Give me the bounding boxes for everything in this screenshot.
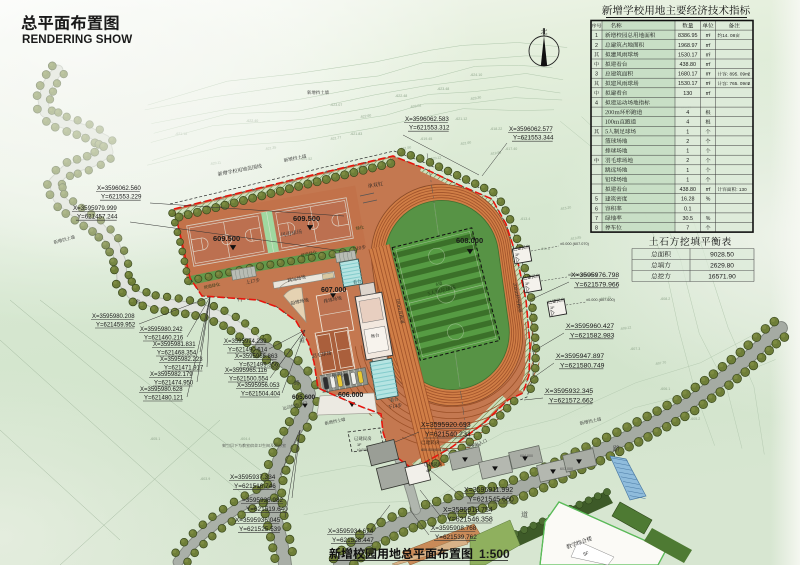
svg-text:X=3595966.863: X=3595966.863: [235, 354, 278, 360]
svg-text:2: 2: [709, 52, 711, 56]
svg-text:1530.17: 1530.17: [678, 81, 698, 87]
svg-text:600.000(606.000): 600.000(606.000): [421, 448, 449, 452]
svg-text:16.28: 16.28: [681, 197, 695, 203]
svg-text:2: 2: [709, 32, 711, 36]
svg-text:-617.40: -617.40: [505, 147, 517, 151]
svg-text:Y=621539.762: Y=621539.762: [435, 534, 477, 541]
svg-text:X=3596062.560: X=3596062.560: [97, 185, 141, 192]
svg-text::: :: [727, 81, 728, 86]
svg-text:X=3595947.897: X=3595947.897: [556, 353, 604, 360]
svg-text:-619.45: -619.45: [420, 137, 432, 141]
svg-text:±0.000 (607.070): ±0.000 (607.070): [560, 242, 590, 246]
svg-text:2: 2: [686, 139, 689, 145]
svg-text:X=3595974.233: X=3595974.233: [224, 339, 267, 345]
svg-text:8: 8: [595, 226, 598, 232]
svg-text:%: %: [706, 216, 711, 222]
svg-text:Y=621474.950: Y=621474.950: [154, 381, 194, 387]
svg-text:Y=621553.312: Y=621553.312: [409, 125, 450, 132]
svg-text:X=3595980.628: X=3595980.628: [140, 387, 183, 393]
svg-text:X=3595979.999: X=3595979.999: [73, 205, 117, 212]
svg-text:Y=621480.121: Y=621480.121: [144, 396, 184, 402]
svg-text:1F: 1F: [515, 253, 520, 257]
svg-text:438.80: 438.80: [680, 187, 697, 193]
svg-text:2: 2: [709, 90, 711, 94]
svg-text:±0.000 (607.600): ±0.000 (607.600): [586, 298, 616, 302]
svg-text:1: 1: [686, 177, 689, 183]
svg-text:2: 2: [595, 43, 598, 49]
svg-text:2: 2: [709, 71, 711, 75]
svg-text:Y=621545.660: Y=621545.660: [468, 497, 514, 504]
svg-text:X=3595934.674: X=3595934.674: [328, 528, 374, 535]
svg-text:8386.95: 8386.95: [678, 33, 698, 39]
svg-text:-603.9: -603.9: [200, 477, 210, 481]
svg-text:-606.1: -606.1: [660, 387, 670, 391]
svg-text:0.1: 0.1: [684, 206, 692, 212]
svg-text:Y=621572.662: Y=621572.662: [549, 397, 594, 404]
svg-text:-608.2: -608.2: [660, 297, 670, 301]
svg-text:4: 4: [686, 120, 689, 126]
svg-text:Y=621471.917: Y=621471.917: [164, 366, 204, 372]
svg-text:9028.50: 9028.50: [710, 252, 734, 259]
svg-text:X=3595976.798: X=3595976.798: [571, 272, 619, 279]
svg-text:Y=621580.749: Y=621580.749: [560, 362, 605, 369]
svg-text:Y=621457.244: Y=621457.244: [77, 214, 118, 221]
svg-text:7: 7: [686, 226, 689, 232]
svg-text:2: 2: [748, 72, 751, 77]
svg-text:-605.1: -605.1: [150, 437, 160, 441]
svg-text:605.600: 605.600: [292, 394, 316, 401]
svg-text:1: 1: [595, 33, 598, 39]
svg-text:1: 1: [686, 149, 689, 155]
svg-text:X=3595932.345: X=3595932.345: [545, 388, 593, 395]
svg-text:1530.17: 1530.17: [678, 52, 698, 58]
svg-text:X=3596062.583: X=3596062.583: [405, 116, 449, 123]
svg-text:X=3595937.334: X=3595937.334: [230, 474, 276, 481]
svg-text:1: 1: [686, 168, 689, 174]
svg-text:609.500: 609.500: [293, 214, 320, 223]
svg-text:608.000: 608.000: [456, 236, 483, 245]
svg-text:2629.80: 2629.80: [710, 263, 734, 270]
svg-text:-605.2: -605.2: [690, 417, 700, 421]
svg-text:Y=621579.966: Y=621579.966: [575, 281, 620, 288]
svg-text:2: 2: [748, 81, 751, 86]
svg-text:2: 2: [709, 186, 711, 190]
svg-text:-604.4: -604.4: [240, 437, 250, 441]
svg-text:Y=621519.640: Y=621519.640: [246, 506, 288, 513]
svg-text:16571.90: 16571.90: [708, 274, 736, 281]
svg-text:1F: 1F: [525, 282, 530, 286]
svg-text:604.000: 604.000: [520, 454, 533, 458]
svg-text:Y=621553.229: Y=621553.229: [101, 194, 142, 201]
svg-text:Y=621582.983: Y=621582.983: [570, 332, 615, 339]
svg-text:X=3595911.992: X=3595911.992: [464, 487, 513, 494]
svg-text:X=3595981.831: X=3595981.831: [153, 342, 196, 348]
svg-text:Y=621504.404: Y=621504.404: [241, 392, 281, 398]
svg-text:605.000: 605.000: [468, 443, 481, 447]
svg-text:6: 6: [595, 206, 598, 212]
svg-text:Y=621500.554: Y=621500.554: [229, 377, 269, 383]
svg-text:603.000: 603.000: [560, 467, 573, 471]
svg-text:X=3595956.053: X=3595956.053: [237, 383, 280, 389]
svg-text:2: 2: [686, 158, 689, 164]
svg-text:X=3595936.045: X=3595936.045: [235, 517, 281, 524]
svg-text:X=3595980.242: X=3595980.242: [140, 327, 183, 333]
svg-text:0: 0: [744, 187, 747, 192]
svg-text:1968.97: 1968.97: [678, 43, 698, 49]
svg-text:4: 4: [595, 101, 598, 107]
svg-text:.: .: [737, 72, 738, 77]
svg-text:=3595936.982: =3595936.982: [242, 497, 283, 504]
svg-text:-623.48: -623.48: [437, 87, 449, 91]
svg-text:Y=621540.234: Y=621540.234: [425, 432, 471, 439]
svg-text:-624.10: -624.10: [470, 73, 482, 77]
svg-text:3: 3: [595, 72, 598, 78]
svg-text:Y=621525.539: Y=621525.539: [239, 526, 281, 533]
svg-text:X=3595965.116: X=3595965.116: [225, 368, 268, 374]
svg-text:607.000: 607.000: [321, 287, 346, 294]
svg-text:X=3595920.693: X=3595920.693: [421, 422, 471, 429]
svg-text:X=3595960.427: X=3595960.427: [566, 323, 614, 330]
svg-text:X=3595908.768: X=3595908.768: [431, 525, 477, 532]
svg-text:5: 5: [595, 197, 598, 203]
svg-text:-618.22: -618.22: [490, 127, 502, 131]
svg-text:438.80: 438.80: [680, 62, 697, 68]
svg-text:1: 1: [686, 129, 689, 135]
svg-text::: :: [736, 187, 737, 192]
svg-text:Y=621553.344: Y=621553.344: [513, 135, 554, 142]
svg-text:-622.48: -622.48: [395, 94, 407, 98]
svg-text:-607.3: -607.3: [630, 347, 640, 351]
svg-text:1F: 1F: [550, 306, 555, 310]
svg-text:X=3595918.754: X=3595918.754: [443, 507, 493, 514]
svg-text:-621.12: -621.12: [455, 117, 467, 121]
svg-text:X=3596062.577: X=3596062.577: [509, 126, 553, 133]
svg-text:RENDERING SHOW: RENDERING SHOW: [22, 33, 132, 46]
svg-text:30.5: 30.5: [683, 216, 694, 222]
svg-text:4: 4: [686, 110, 689, 116]
svg-text:1680.17: 1680.17: [678, 72, 698, 78]
svg-text:X=3595982.223: X=3595982.223: [160, 357, 203, 363]
svg-text:X=3595982.179: X=3595982.179: [150, 372, 193, 378]
svg-text:1F: 1F: [357, 443, 362, 447]
svg-text:1:500: 1:500: [479, 547, 510, 561]
svg-text:.: .: [727, 33, 728, 38]
svg-text:.: .: [737, 81, 738, 86]
svg-text:Y=621490.614: Y=621490.614: [228, 348, 268, 354]
svg-text:Y=621516.746: Y=621516.746: [234, 483, 276, 490]
svg-text:-621.83: -621.83: [350, 132, 362, 136]
svg-text:X=3595980.208: X=3595980.208: [92, 314, 135, 320]
svg-text:Y=621459.952: Y=621459.952: [96, 323, 136, 329]
svg-text:%: %: [706, 197, 711, 203]
svg-text:Y=621546.358: Y=621546.358: [447, 517, 493, 524]
svg-text:2: 2: [709, 42, 711, 46]
svg-text:130: 130: [683, 91, 692, 97]
svg-text:2: 2: [709, 80, 711, 84]
svg-text:Y=621460.216: Y=621460.216: [144, 336, 184, 342]
svg-text::: :: [727, 72, 728, 77]
svg-text:Y=621468.354: Y=621468.354: [157, 351, 197, 357]
svg-text:8: 8: [733, 33, 736, 38]
svg-text:7: 7: [595, 216, 598, 222]
svg-text:Y=621528.447: Y=621528.447: [332, 537, 374, 544]
svg-text:-613.4: -613.4: [520, 217, 530, 221]
svg-text:2: 2: [709, 61, 711, 65]
